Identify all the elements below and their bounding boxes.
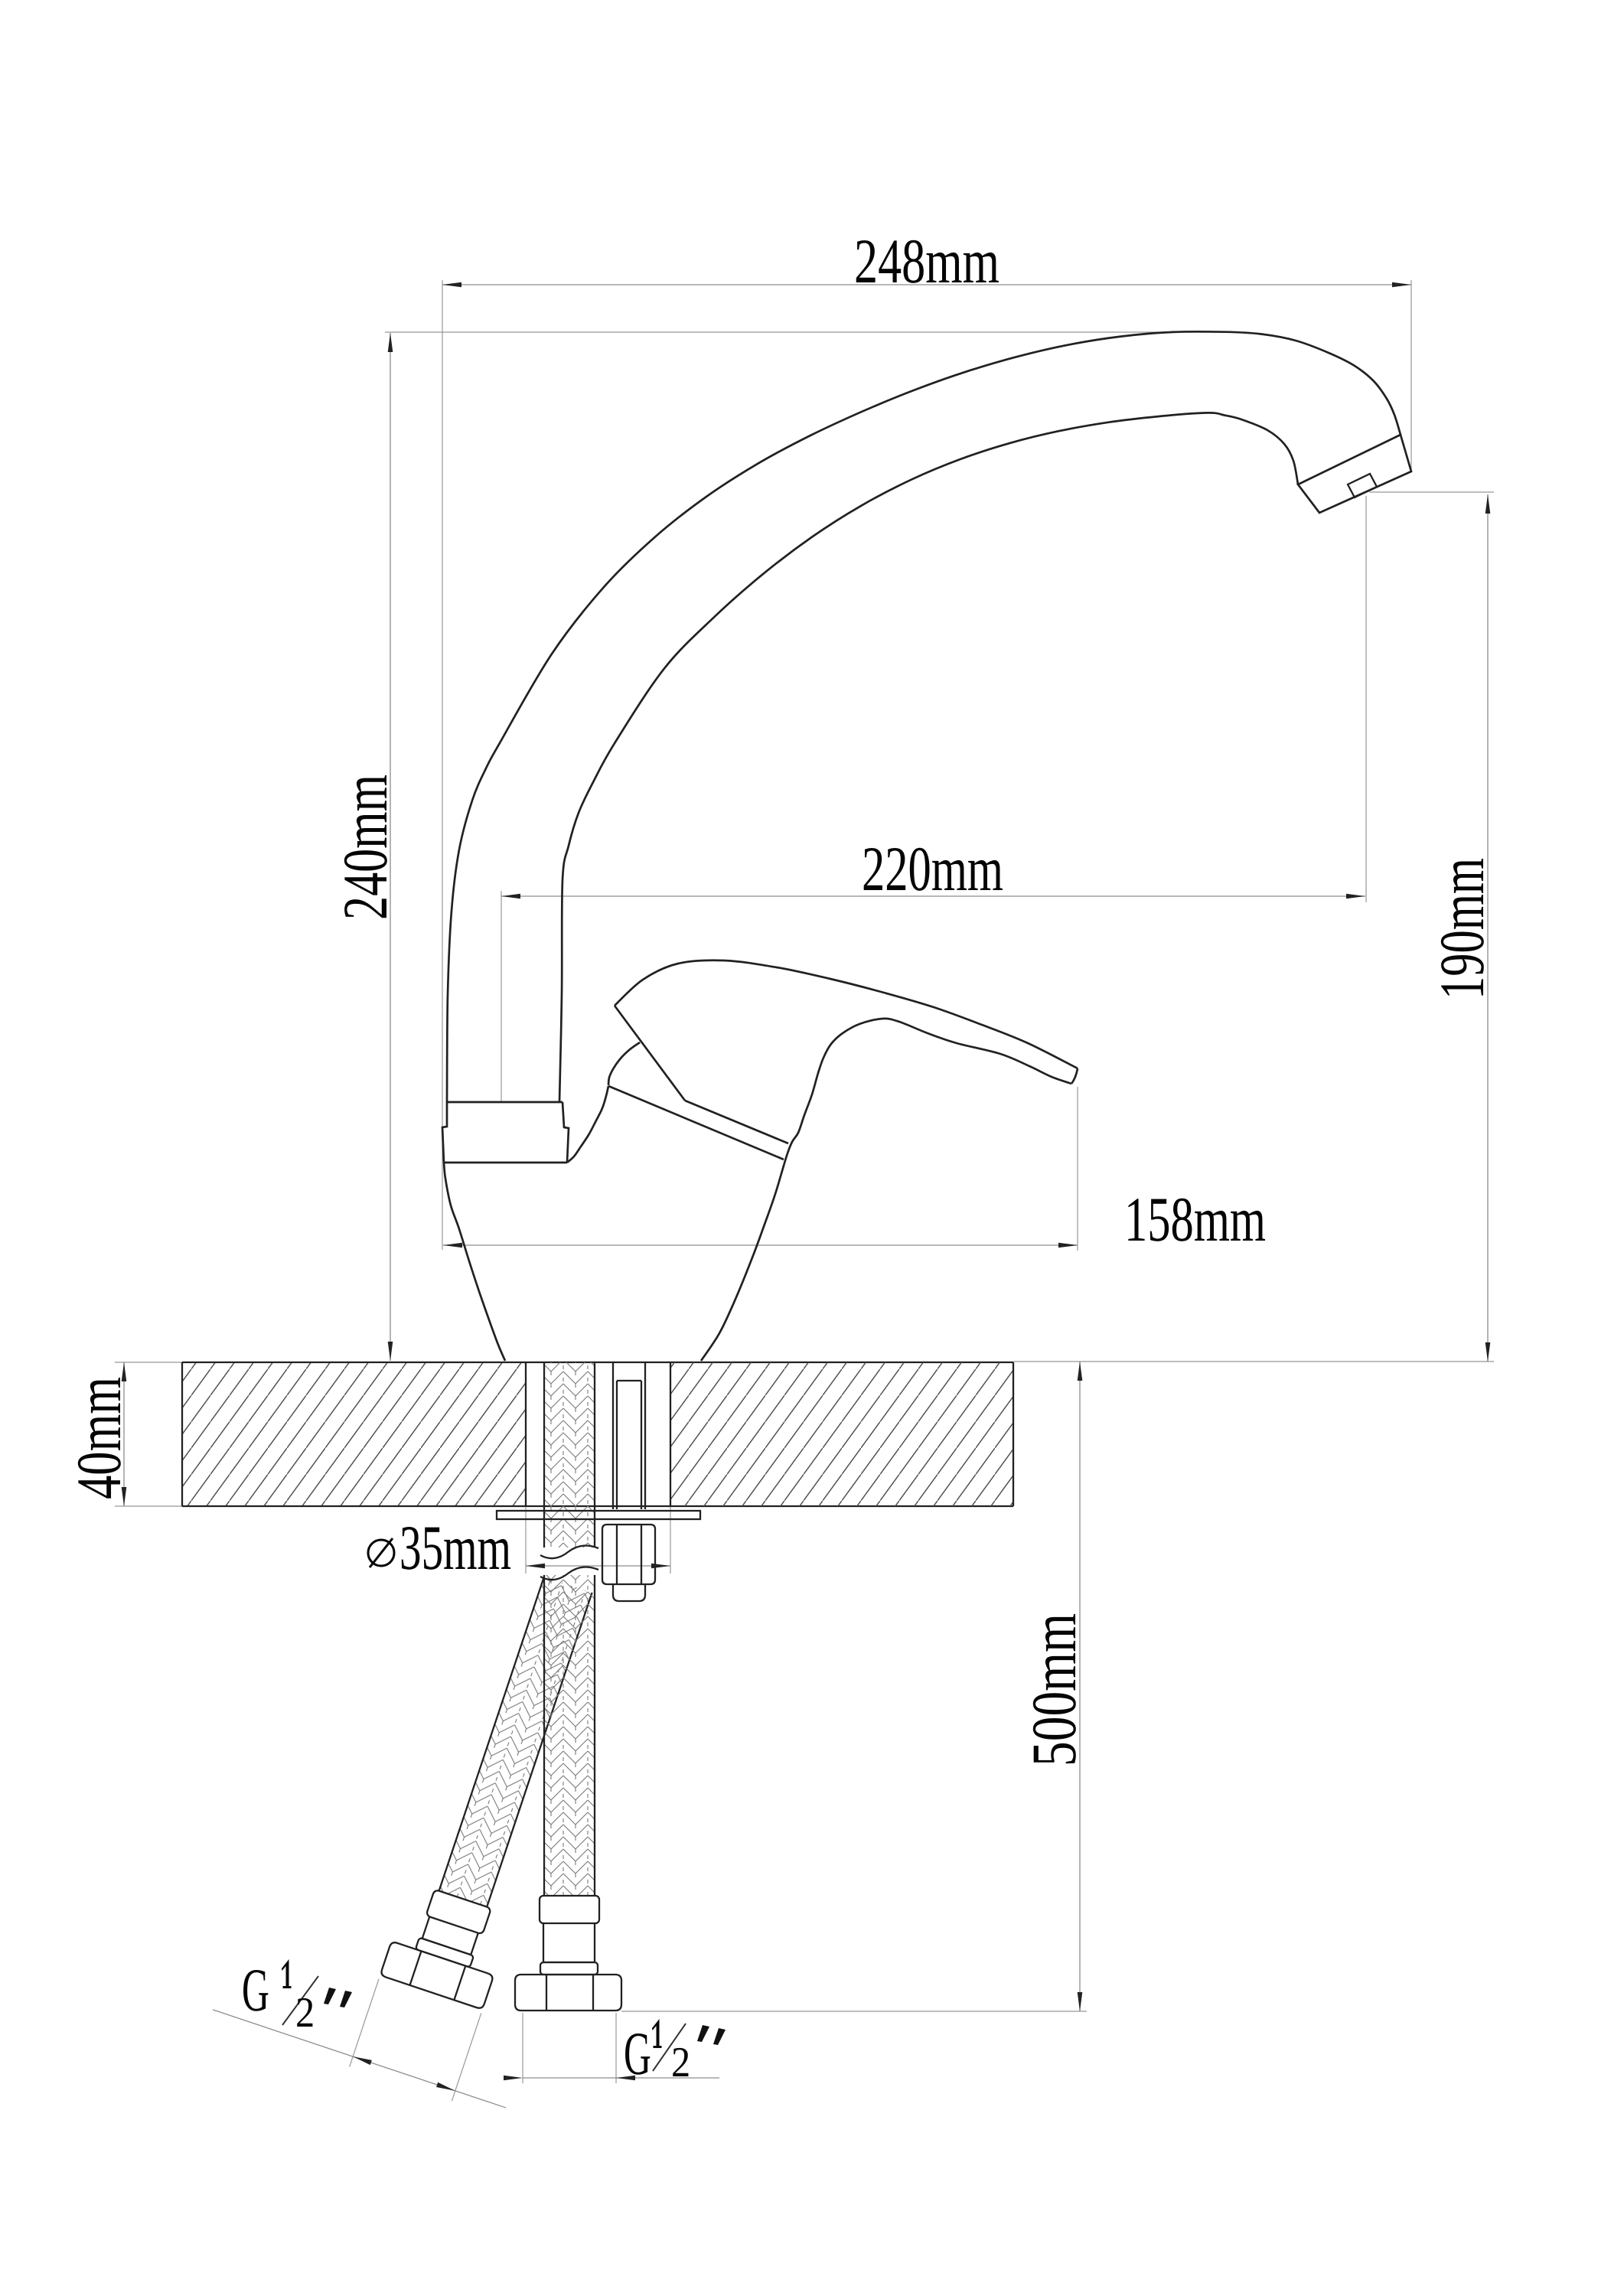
svg-text:G: G — [624, 2020, 651, 2088]
svg-text:35mm: 35mm — [399, 1512, 511, 1583]
svg-text:220mm: 220mm — [862, 833, 1003, 904]
svg-text:248mm: 248mm — [854, 226, 1000, 296]
svg-text:500mm: 500mm — [1019, 1613, 1089, 1766]
svg-text:2: 2 — [671, 2039, 690, 2086]
svg-text:40mm: 40mm — [64, 1377, 134, 1499]
svg-text:G: G — [242, 1957, 269, 2024]
svg-text:2: 2 — [295, 1989, 315, 2037]
svg-text:158mm: 158mm — [1124, 1184, 1266, 1254]
svg-text:240mm: 240mm — [330, 775, 400, 920]
svg-text:190mm: 190mm — [1427, 858, 1497, 1000]
